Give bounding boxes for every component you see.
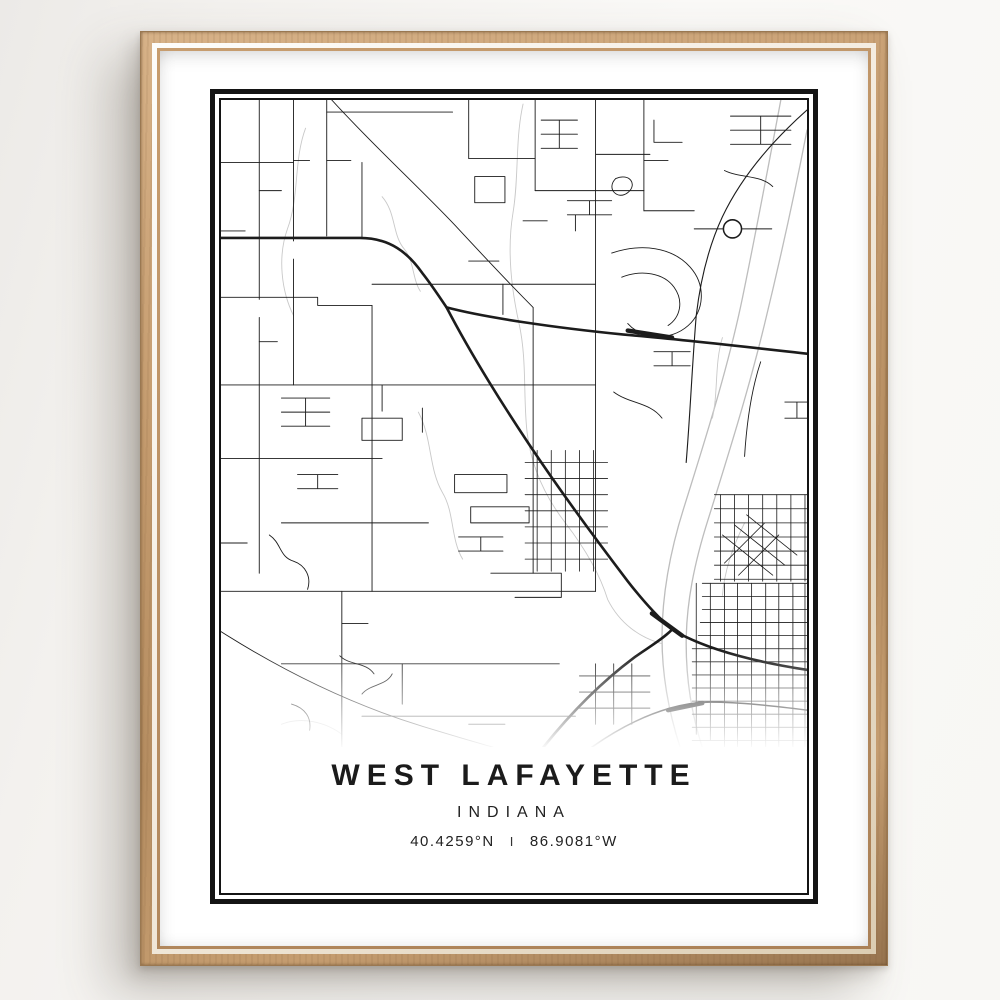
coordinates: 40.4259°N I 86.9081°W <box>410 833 618 850</box>
mat-board: WEST LAFAYETTE INDIANA 40.4259°N I 86.90… <box>160 51 868 946</box>
state-subtitle: INDIANA <box>457 804 571 822</box>
frame-inner-lip: WEST LAFAYETTE INDIANA 40.4259°N I 86.90… <box>157 48 871 949</box>
map-poster: WEST LAFAYETTE INDIANA 40.4259°N I 86.90… <box>210 89 818 904</box>
wall-background: WEST LAFAYETTE INDIANA 40.4259°N I 86.90… <box>0 0 1000 1000</box>
frame-bevel: WEST LAFAYETTE INDIANA 40.4259°N I 86.90… <box>152 43 876 954</box>
street-map-graphic <box>221 100 807 747</box>
poster-inner-border: WEST LAFAYETTE INDIANA 40.4259°N I 86.90… <box>219 98 809 895</box>
picture-frame: WEST LAFAYETTE INDIANA 40.4259°N I 86.90… <box>140 31 888 966</box>
map-bottom-fade <box>221 649 807 748</box>
latitude-value: 40.4259°N <box>410 833 495 850</box>
coordinates-separator: I <box>510 834 515 849</box>
poster-title-block: WEST LAFAYETTE INDIANA 40.4259°N I 86.90… <box>221 747 807 893</box>
longitude-value: 86.9081°W <box>530 833 618 850</box>
city-title: WEST LAFAYETTE <box>331 759 696 793</box>
